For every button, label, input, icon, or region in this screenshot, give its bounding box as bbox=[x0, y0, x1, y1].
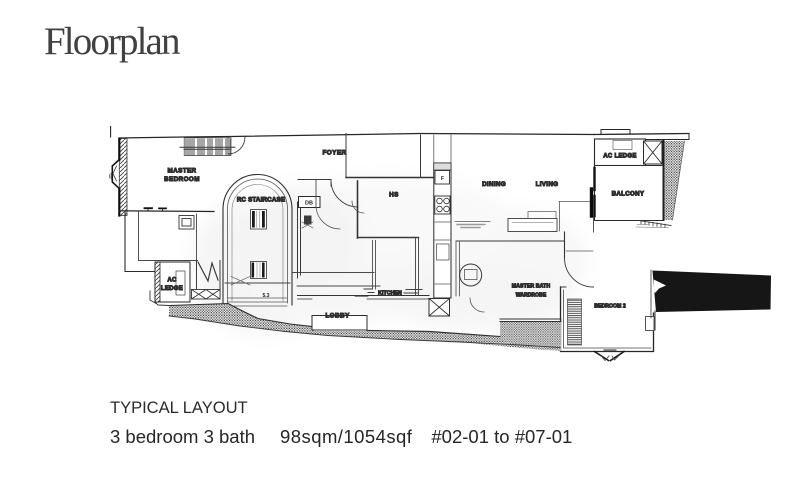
svg-text:BALCONY: BALCONY bbox=[612, 191, 645, 198]
svg-text:MASTER BATH: MASTER BATH bbox=[512, 284, 551, 290]
svg-text:DINING: DINING bbox=[482, 181, 506, 188]
svg-text:AC LEDGE: AC LEDGE bbox=[603, 154, 636, 160]
svg-text:FOYER: FOYER bbox=[322, 150, 346, 157]
svg-text:F: F bbox=[441, 176, 444, 182]
svg-text:BEDROOM 2: BEDROOM 2 bbox=[594, 304, 626, 310]
svg-text:WARDROBE: WARDROBE bbox=[516, 293, 547, 299]
svg-text:HS: HS bbox=[389, 192, 399, 199]
svg-text:LOBBY: LOBBY bbox=[325, 313, 350, 320]
svg-text:AC: AC bbox=[167, 278, 177, 284]
svg-text:MASTER: MASTER bbox=[168, 168, 197, 175]
svg-text:DB: DB bbox=[305, 201, 313, 207]
svg-text:5.3: 5.3 bbox=[263, 293, 270, 299]
svg-text:KITCHEN: KITCHEN bbox=[378, 291, 402, 297]
svg-text:RC STAIRCASE: RC STAIRCASE bbox=[237, 197, 285, 204]
svg-text:LEDGE: LEDGE bbox=[161, 286, 183, 292]
svg-text:BEDROOM: BEDROOM bbox=[164, 176, 200, 183]
svg-text:LIVING: LIVING bbox=[536, 181, 559, 188]
